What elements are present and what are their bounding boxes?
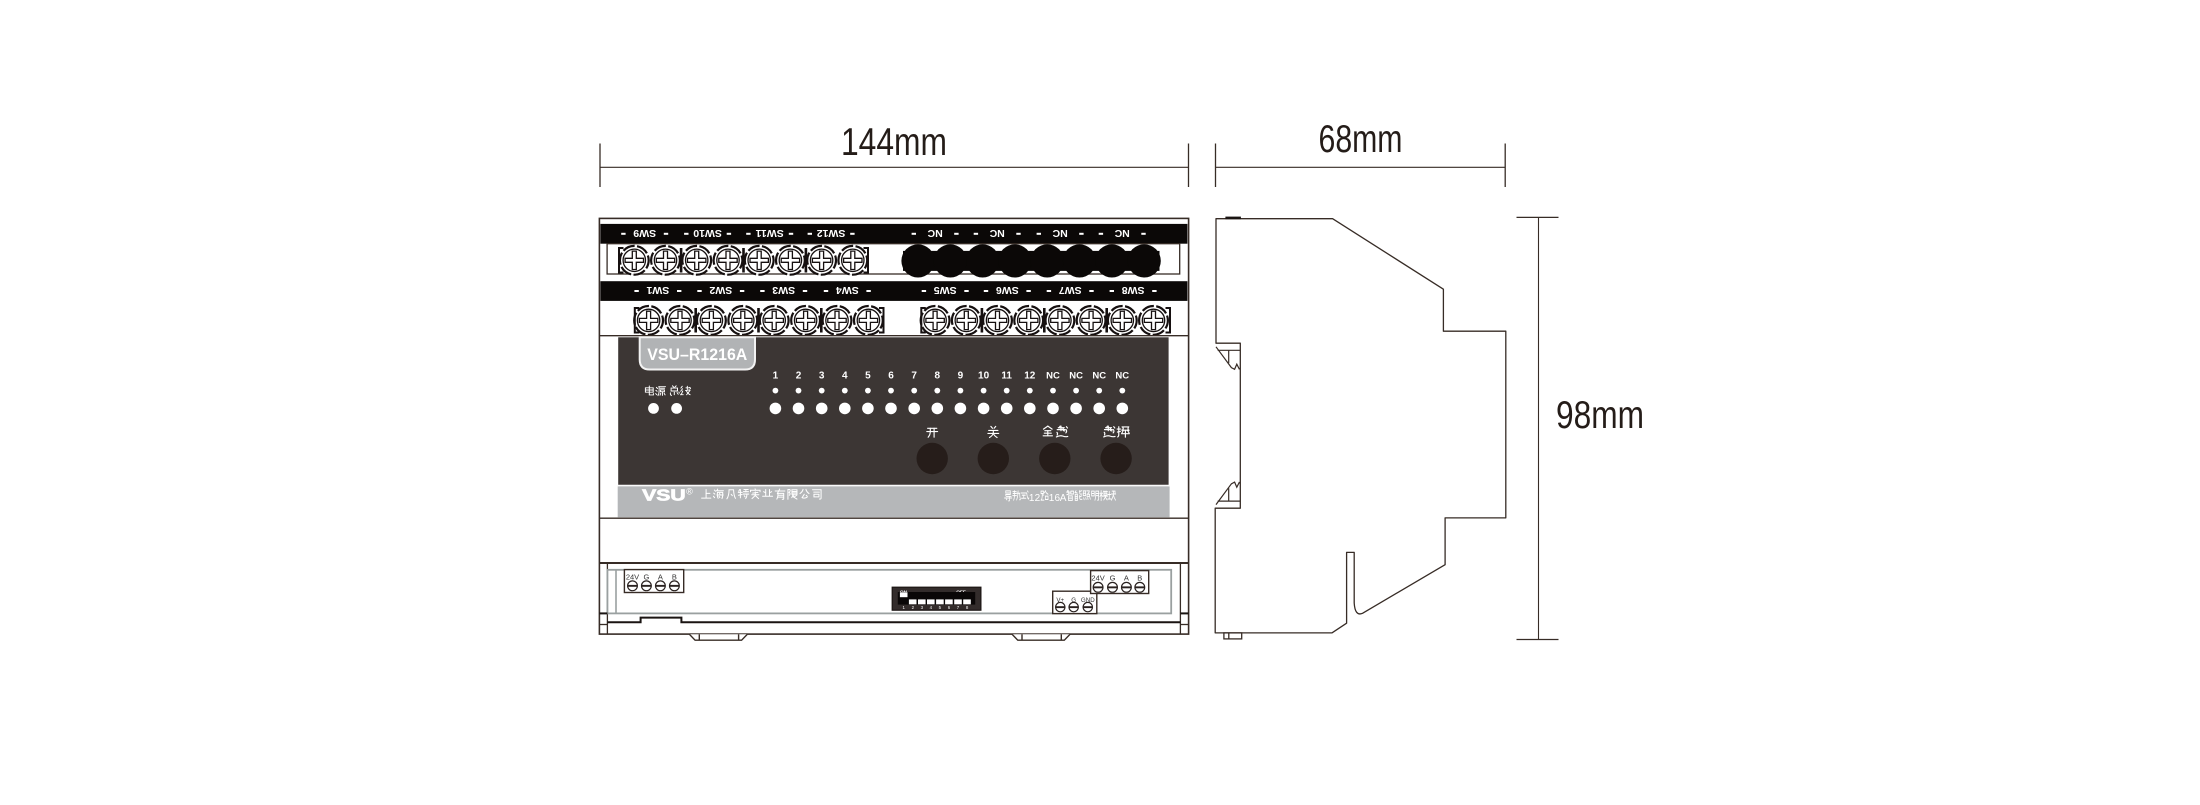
svg-text:NC: NC: [1114, 227, 1130, 239]
svg-text:12: 12: [1024, 371, 1036, 382]
svg-text:NC: NC: [1069, 371, 1083, 382]
svg-text:11: 11: [1001, 371, 1012, 382]
svg-text:6: 6: [888, 371, 894, 382]
svg-text:NC: NC: [927, 227, 943, 239]
svg-text:SW3: SW3: [772, 284, 795, 296]
svg-text:5: 5: [865, 371, 871, 382]
svg-text:24V: 24V: [1091, 573, 1104, 582]
svg-text:G: G: [643, 573, 649, 582]
svg-text:SW2: SW2: [709, 284, 732, 296]
svg-text:NC: NC: [1092, 371, 1106, 382]
svg-text:SW11: SW11: [756, 227, 784, 239]
svg-text:A: A: [1060, 493, 1067, 504]
svg-text:A: A: [1124, 573, 1129, 582]
svg-text:B: B: [672, 573, 677, 582]
svg-text:SW5: SW5: [934, 284, 957, 296]
svg-text:68mm: 68mm: [1319, 118, 1403, 161]
svg-text:SW4: SW4: [836, 284, 859, 296]
svg-text:®: ®: [686, 487, 693, 497]
svg-text:VSU–R1216A: VSU–R1216A: [647, 346, 747, 364]
svg-text:144mm: 144mm: [841, 121, 947, 164]
svg-text:SW7: SW7: [1059, 284, 1082, 296]
svg-text:NC: NC: [1052, 227, 1068, 239]
svg-text:NC: NC: [1115, 371, 1129, 382]
svg-text:B: B: [1137, 573, 1142, 582]
svg-text:SW1: SW1: [646, 284, 669, 296]
svg-text:SW10: SW10: [693, 227, 722, 239]
svg-text:NC: NC: [1046, 371, 1060, 382]
svg-text:G: G: [1110, 573, 1116, 582]
svg-text:1: 1: [773, 371, 779, 382]
svg-text:SW9: SW9: [633, 227, 656, 239]
svg-text:7: 7: [911, 371, 917, 382]
svg-text:4: 4: [842, 371, 848, 382]
svg-text:SW12: SW12: [817, 227, 846, 239]
svg-text:VSU: VSU: [642, 488, 686, 505]
svg-text:8: 8: [935, 371, 941, 382]
svg-text:98mm: 98mm: [1556, 394, 1644, 437]
svg-text:2: 2: [1035, 493, 1041, 504]
svg-text:24V: 24V: [626, 573, 639, 582]
svg-text:SW6: SW6: [996, 284, 1019, 296]
svg-text:10: 10: [978, 371, 990, 382]
svg-text:A: A: [658, 573, 663, 582]
svg-text:3: 3: [819, 371, 825, 382]
svg-text:2: 2: [796, 371, 802, 382]
svg-text:SW8: SW8: [1122, 284, 1145, 296]
svg-text:9: 9: [958, 371, 964, 382]
svg-text:NC: NC: [989, 227, 1005, 239]
